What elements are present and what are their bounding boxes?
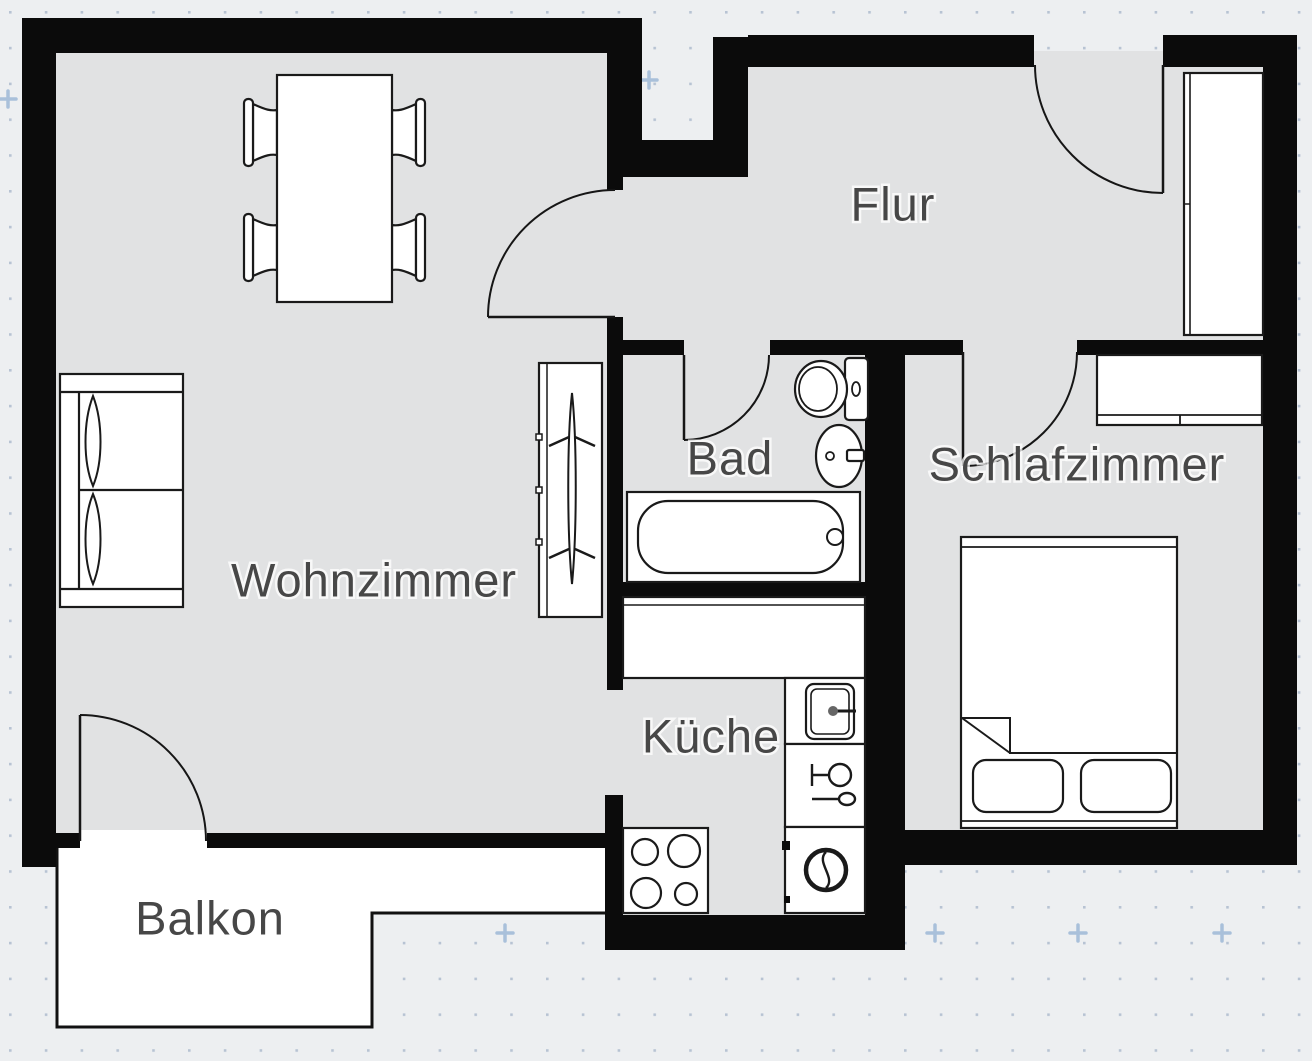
wall-top-living[interactable] (22, 18, 642, 53)
opening-kueche (607, 690, 623, 795)
washing-machine-latch (782, 841, 790, 850)
bathtub-drain (827, 529, 843, 545)
dishwasher[interactable] (785, 744, 865, 827)
washing-machine[interactable] (782, 827, 865, 913)
wall-bottom-living[interactable] (207, 833, 607, 848)
wall-bad-top-right[interactable] (770, 340, 865, 355)
label-kueche[interactable]: Küche (642, 709, 780, 762)
wall-bottom-left[interactable] (56, 833, 80, 848)
opening-schlafzimmer-door (963, 340, 1077, 355)
toilet-bowl-inner (799, 367, 837, 411)
chair-seat (253, 104, 277, 161)
wall-top-flur[interactable] (748, 35, 1034, 67)
sideboard[interactable] (1097, 355, 1262, 425)
kitchen-counter[interactable] (623, 597, 865, 678)
label-schlafzimmer[interactable]: Schlafzimmer (929, 437, 1226, 490)
sink-drain (828, 706, 838, 716)
wall-notch-connector[interactable] (607, 140, 713, 177)
chair-back (416, 214, 425, 281)
toilet[interactable] (795, 358, 868, 420)
wall-left[interactable] (22, 18, 56, 867)
bed[interactable] (961, 537, 1177, 828)
wall-divider-bedroom[interactable] (865, 340, 905, 915)
wall-bottom-bedroom[interactable] (877, 830, 1297, 865)
chair-back (244, 214, 253, 281)
balcony-door-threshold (80, 830, 207, 848)
label-wohnzimmer[interactable]: Wohnzimmer (231, 553, 517, 606)
label-flur[interactable]: Flur (851, 177, 936, 230)
bathtub-basin (638, 501, 843, 573)
sofa[interactable] (60, 374, 183, 607)
kitchen-sink-unit[interactable] (785, 678, 865, 744)
chair-back (244, 99, 253, 166)
basin-drain (826, 452, 834, 460)
chair-seat (253, 219, 277, 276)
label-bad[interactable]: Bad (687, 431, 774, 484)
basin-faucet (847, 450, 864, 461)
wardrobe-knob (536, 539, 542, 545)
dishwasher-body (785, 744, 865, 827)
wall-flur-bedroom-left[interactable] (905, 340, 963, 355)
wall-kitchen-left[interactable] (605, 795, 623, 917)
toilet-flush-button (852, 382, 860, 396)
opening-entrance-door (1034, 51, 1163, 67)
chair-seat (392, 104, 416, 161)
chair-seat (392, 219, 416, 276)
counter-top (623, 597, 865, 678)
wall-notch-vertical[interactable] (713, 37, 748, 177)
stove[interactable] (623, 828, 708, 913)
chair-back (416, 99, 425, 166)
pillow (1081, 760, 1171, 812)
label-balkon[interactable]: Balkon (135, 891, 285, 944)
hall-wardrobe-body (1184, 73, 1263, 335)
hall-wardrobe[interactable] (1184, 73, 1263, 335)
bathtub[interactable] (627, 492, 860, 582)
wall-right[interactable] (1263, 35, 1297, 860)
wall-bottom-kitchen[interactable] (605, 915, 905, 950)
clothes-rail (568, 393, 576, 584)
wall-flur-bedroom-right[interactable] (1077, 340, 1263, 355)
floor-plan-canvas: Wohnzimmer Flur Bad Schlafzimmer Küche B… (0, 0, 1312, 1061)
wall-living-right-lower[interactable] (607, 317, 623, 690)
floor-flur-corridor[interactable] (623, 177, 865, 340)
opening-wohnzimmer-flur (607, 190, 623, 317)
opening-bad-door (684, 340, 770, 355)
dining-table[interactable] (277, 75, 392, 302)
wardrobe-knob (536, 434, 542, 440)
washing-machine-latch (784, 896, 790, 903)
wardrobe-with-rail[interactable] (536, 363, 602, 617)
wall-bad-top-left[interactable] (623, 340, 684, 355)
wall-bad-bottom[interactable] (607, 582, 865, 597)
pillow (973, 760, 1063, 812)
wardrobe-knob (536, 487, 542, 493)
